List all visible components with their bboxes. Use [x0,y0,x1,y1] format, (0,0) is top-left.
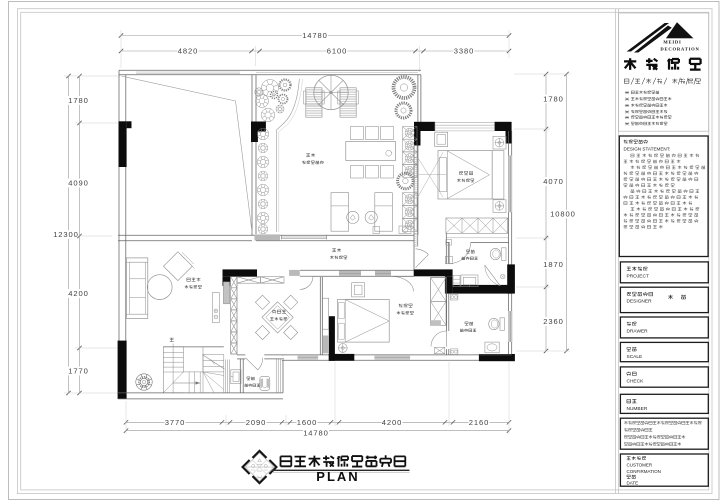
svg-text:SCALE: SCALE [627,354,643,360]
svg-text:PROJECT: PROJECT [627,273,649,279]
svg-text:4200: 4200 [68,289,89,298]
svg-text:4200: 4200 [382,418,403,427]
svg-text:2160: 2160 [469,418,490,427]
svg-text:1780: 1780 [543,95,564,104]
svg-text:4820: 4820 [178,47,199,56]
svg-text:6100: 6100 [327,47,348,56]
svg-text:MEIDI: MEIDI [663,40,681,45]
svg-text:1600: 1600 [297,418,318,427]
svg-text:12300: 12300 [53,230,79,239]
svg-text:CHECK: CHECK [627,378,645,384]
svg-text:CUSTOMER: CUSTOMER [627,463,653,468]
svg-text:3380: 3380 [454,47,475,56]
svg-text:DRAWER: DRAWER [627,329,649,335]
svg-text:4070: 4070 [543,177,564,186]
svg-text:NUMBER: NUMBER [627,406,648,412]
svg-text:DESIGN STATEMENT:: DESIGN STATEMENT: [624,147,671,152]
svg-text:1780: 1780 [68,96,89,105]
svg-text:1770: 1770 [68,367,89,376]
svg-text:4090: 4090 [68,179,89,188]
svg-text:2360: 2360 [543,317,564,326]
svg-text:10800: 10800 [550,210,576,219]
svg-text:DECORATION: DECORATION [660,47,699,52]
svg-text:PLAN: PLAN [316,469,359,484]
svg-text:2090: 2090 [246,418,267,427]
svg-text:DATE: DATE [627,480,639,485]
svg-text:1870: 1870 [543,260,564,269]
svg-text:3770: 3770 [165,418,186,427]
svg-text:14780: 14780 [302,31,328,40]
svg-text:14780: 14780 [303,428,329,437]
svg-text:DESIGNER: DESIGNER [627,299,653,305]
svg-text:CONFIRMATION: CONFIRMATION [627,469,661,474]
